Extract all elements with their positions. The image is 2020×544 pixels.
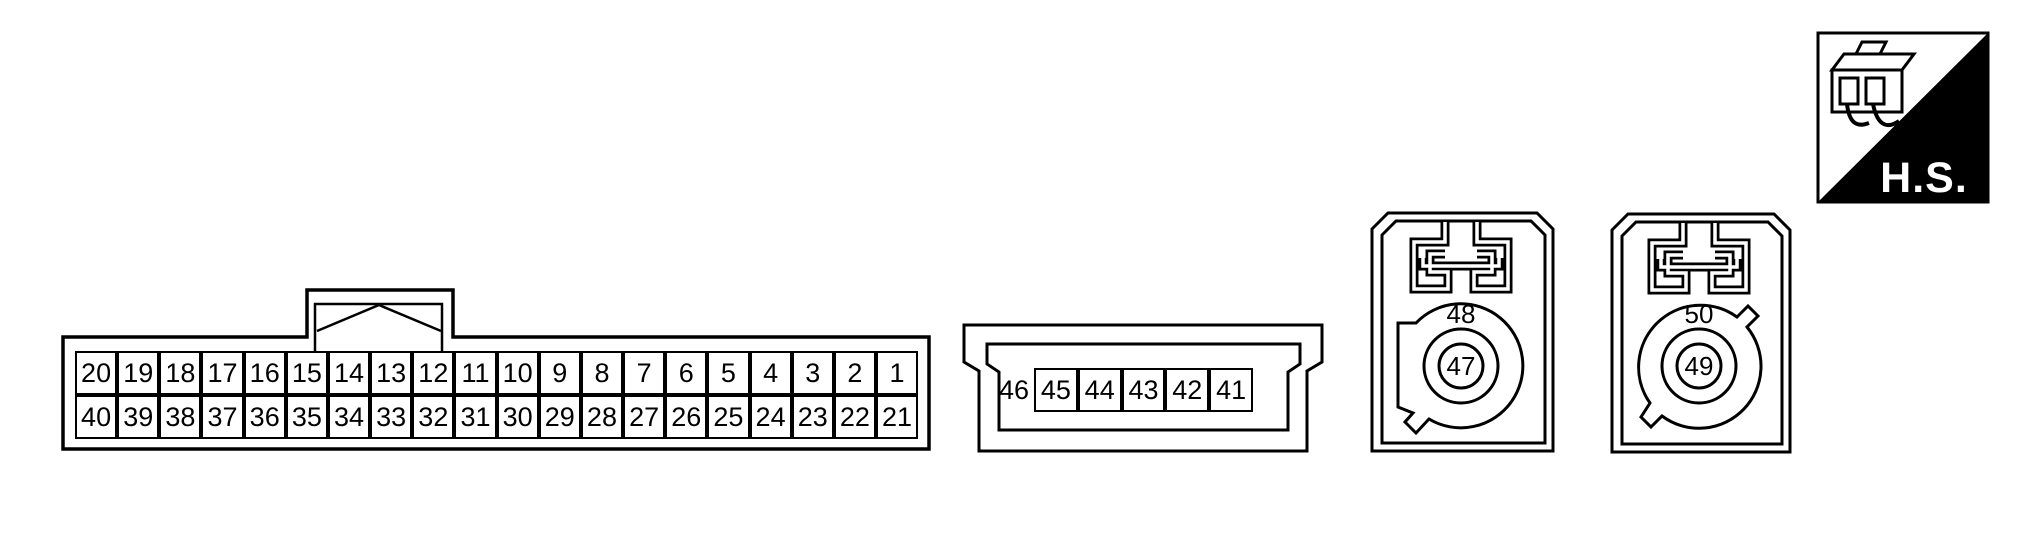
pin-label-50: 50 xyxy=(1679,301,1719,327)
pin-cell: 27 xyxy=(623,395,665,439)
pin-cell: 31 xyxy=(454,395,496,439)
main-connector-top-row: 20 19 18 17 16 15 14 13 12 11 10 9 8 7 6… xyxy=(75,351,918,395)
pin-cell: 24 xyxy=(750,395,792,439)
pin-cell: 22 xyxy=(834,395,876,439)
pin-cell: 26 xyxy=(665,395,707,439)
mid-connector-terminal-row: 45 44 43 42 41 xyxy=(1034,368,1253,412)
connector-plug-icon xyxy=(1832,42,1914,125)
pin-cell: 11 xyxy=(454,351,496,395)
pin-cell: 39 xyxy=(117,395,159,439)
pin-cell: 9 xyxy=(539,351,581,395)
pin-cell: 36 xyxy=(244,395,286,439)
hs-badge-label: H.S. xyxy=(1872,157,1976,199)
pin-cell: 20 xyxy=(75,351,117,395)
diagram-line-art xyxy=(0,0,2020,544)
round-b-clip-maze xyxy=(1652,223,1746,290)
pin-cell: 8 xyxy=(581,351,623,395)
pin-label-48: 48 xyxy=(1441,301,1481,327)
pin-label-47: 47 xyxy=(1441,353,1481,379)
latch-tab xyxy=(315,304,442,352)
main-connector-bottom-row: 40 39 38 37 36 35 34 33 32 31 30 29 28 2… xyxy=(75,395,918,439)
pin-cell: 3 xyxy=(792,351,834,395)
pin-label-49: 49 xyxy=(1679,353,1719,379)
pin-cell: 28 xyxy=(581,395,623,439)
pin-cell: 15 xyxy=(286,351,328,395)
pin-cell: 19 xyxy=(117,351,159,395)
pin-cell: 23 xyxy=(792,395,834,439)
pin-cell: 17 xyxy=(201,351,243,395)
pin-cell: 37 xyxy=(201,395,243,439)
pin-cell: 18 xyxy=(159,351,201,395)
pin-cell: 14 xyxy=(328,351,370,395)
pin-cell: 1 xyxy=(876,351,918,395)
main-connector-terminal-grid: 20 19 18 17 16 15 14 13 12 11 10 9 8 7 6… xyxy=(75,351,918,439)
round-connector-b xyxy=(1612,214,1790,452)
pin-label-46: 46 xyxy=(996,368,1032,412)
pin-cell: 43 xyxy=(1122,368,1166,412)
pin-cell: 4 xyxy=(750,351,792,395)
pin-cell: 5 xyxy=(707,351,749,395)
pin-cell: 42 xyxy=(1165,368,1209,412)
round-connector-a xyxy=(1372,213,1553,451)
pin-cell: 21 xyxy=(876,395,918,439)
pin-cell: 30 xyxy=(497,395,539,439)
pin-cell: 41 xyxy=(1209,368,1253,412)
pin-cell: 35 xyxy=(286,395,328,439)
pin-cell: 13 xyxy=(370,351,412,395)
pin-cell: 32 xyxy=(412,395,454,439)
pin-cell: 12 xyxy=(412,351,454,395)
pin-cell: 40 xyxy=(75,395,117,439)
pin-cell: 44 xyxy=(1078,368,1122,412)
pin-cell: 38 xyxy=(159,395,201,439)
connector-pinout-diagram: 20 19 18 17 16 15 14 13 12 11 10 9 8 7 6… xyxy=(0,0,2020,544)
pin-cell: 7 xyxy=(623,351,665,395)
pin-cell: 29 xyxy=(539,395,581,439)
pin-cell: 45 xyxy=(1034,368,1078,412)
round-a-clip-maze xyxy=(1414,222,1508,289)
pin-cell: 16 xyxy=(244,351,286,395)
latch-tab-roof-lines xyxy=(317,305,441,331)
round-b-housing-outer xyxy=(1612,214,1790,452)
pin-cell: 33 xyxy=(370,395,412,439)
pin-cell: 2 xyxy=(834,351,876,395)
pin-cell: 10 xyxy=(497,351,539,395)
pin-cell: 6 xyxy=(665,351,707,395)
pin-cell: 34 xyxy=(328,395,370,439)
pin-cell: 25 xyxy=(707,395,749,439)
